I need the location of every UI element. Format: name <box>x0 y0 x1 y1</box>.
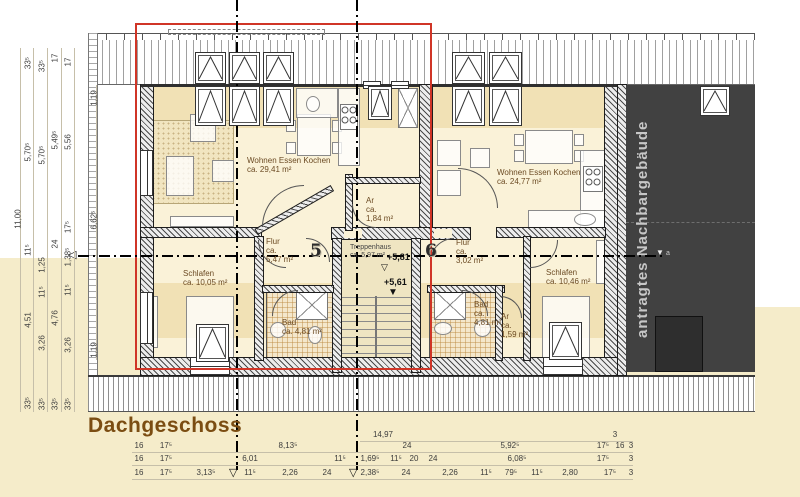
dimension-label: 3,26 <box>38 335 47 351</box>
dimension-label: 17 <box>64 58 73 67</box>
roof-window-icon <box>195 86 226 126</box>
dimension-label: 3 <box>629 468 633 477</box>
section-line-vertical-2 <box>356 0 358 470</box>
dimension-label: 14,97 <box>373 430 393 439</box>
floor-plan-drawing: antragtes Nachbargebäude ◁ ▽ ▽ ▼ a Wohne… <box>0 0 800 497</box>
roof-surface-bottom <box>88 375 755 412</box>
dimension-label: 33⁵ <box>24 397 33 409</box>
dimension-line <box>20 48 21 412</box>
section-arrow-down-2: ▽ <box>349 466 357 479</box>
wall-living-schlafen-right <box>497 228 605 237</box>
dimension-line <box>132 452 633 453</box>
roof-window-icon <box>368 86 392 120</box>
dimension-line <box>47 48 48 412</box>
dimension-label: 1,25 <box>38 257 47 273</box>
dimension-label: 5,49⁵ <box>51 131 60 150</box>
dimension-label: 2,38⁵ <box>361 468 380 477</box>
stove-icon <box>583 166 603 192</box>
dimension-label: 17 <box>51 54 60 63</box>
apartment-number-5: 5 <box>310 241 322 261</box>
level-lower-marker: ▼ <box>388 287 398 298</box>
dimension-label: 16 <box>135 454 144 463</box>
dimension-label: 11⁵ <box>24 244 33 256</box>
dining-chair <box>574 134 584 146</box>
room-label-ar-right: Ar ca. 1,59 m² <box>501 312 528 339</box>
dimension-label: 3,13⁵ <box>197 468 216 477</box>
dimension-label: 3,26 <box>64 337 73 353</box>
dimension-label: 16 <box>135 441 144 450</box>
dimension-label: 33⁵ <box>38 60 47 72</box>
dimension-line <box>33 48 34 412</box>
dimension-label: 17⁵ <box>597 441 609 450</box>
room-label-schlafen-right: Schlafen ca. 10,46 m² <box>546 268 590 286</box>
room-label-bad-right: Bad ca. 4,81 m² <box>474 300 501 327</box>
apartment-number-6: 6 <box>425 241 437 261</box>
dimension-label: 17⁵ <box>64 221 73 233</box>
dimension-label: 24 <box>403 441 412 450</box>
dimension-label: 11⁵ <box>38 286 47 298</box>
room-label-schlafen-left: Schlafen ca. 10,05 m² <box>183 269 227 287</box>
dimension-label: 3 <box>613 430 617 439</box>
roof-window-icon <box>489 86 522 126</box>
room-label-flur-right: Flur ca. 3,02 m² <box>456 238 483 265</box>
dimension-label: 5,56 <box>64 134 73 150</box>
dimension-label: 24 <box>323 468 332 477</box>
dimension-label: 1,69⁵ <box>361 454 380 463</box>
dimension-label: 3 <box>629 454 633 463</box>
dimension-label: 8,13⁵ <box>279 441 298 450</box>
neighbor-label: antragtes Nachbargebäude <box>634 90 658 368</box>
dimension-label: 16 <box>135 468 144 477</box>
dimension-label: 17⁵ <box>160 454 172 463</box>
dimension-label: 17⁵ <box>597 454 609 463</box>
dimension-label: 17⁵ <box>604 468 616 477</box>
kitchen-sink-right <box>574 213 596 226</box>
roof-window-icon <box>700 86 730 116</box>
roof-window-icon <box>263 52 294 84</box>
dimension-label: 17⁵ <box>160 441 172 450</box>
dimension-label: 33⁵ <box>64 398 73 410</box>
dimension-label: 20 <box>410 454 419 463</box>
dimension-label: 5,92⁵ <box>501 441 520 450</box>
room-label-treppenhaus: Treppenhaus ca. 5,97 m² <box>350 244 391 260</box>
dimension-label: 4,51 <box>24 312 33 328</box>
dining-chair <box>514 134 524 146</box>
room-label-bad-left: Bad ca. 4,81 m² <box>282 318 322 336</box>
page-title: Dachgeschoss <box>88 414 242 438</box>
dimension-label: 11⁵ <box>531 468 543 477</box>
roof-window-icon <box>195 52 226 84</box>
dining-chair <box>514 150 524 162</box>
neighbor-level-suffix: a <box>666 250 670 257</box>
level-lower: +5,61 <box>384 277 407 287</box>
dimension-label: 24 <box>402 468 411 477</box>
exterior-wall-right <box>605 85 617 375</box>
party-wall-hatch <box>617 85 626 375</box>
dimension-line <box>360 441 633 442</box>
roof-window-icon <box>549 322 582 360</box>
dining-table-right <box>525 130 573 164</box>
roof-window-icon <box>229 52 260 84</box>
dimension-line <box>74 48 75 412</box>
dimension-label: 33⁵ <box>24 57 33 69</box>
neighbor-chimney <box>655 316 703 372</box>
dimension-label: 4,76 <box>51 310 60 326</box>
dimension-label: 1,38⁵ <box>64 248 73 267</box>
dimension-label: 1,19 <box>90 342 99 358</box>
dimension-label: 1,19 <box>90 90 99 106</box>
roof-window-icon <box>263 86 294 126</box>
level-upper: +5,81 <box>387 252 410 262</box>
neighbor-level-marker: ▼ <box>656 248 664 257</box>
dimension-label: 33⁵ <box>51 398 60 410</box>
dimension-label: 2,26 <box>442 468 458 477</box>
dimension-label: 2,26 <box>282 468 298 477</box>
dimension-label: 17⁵ <box>160 468 172 477</box>
dimension-label: 11⁵ <box>64 284 73 296</box>
dimension-line <box>132 465 633 466</box>
room-label-ar-left: Ar ca. 1,84 m² <box>366 196 393 223</box>
dimension-label: 6,62⁵ <box>90 211 99 230</box>
roof-window-icon <box>229 86 260 126</box>
dimension-label: 3 <box>629 441 633 450</box>
dimension-label: 16 <box>616 441 625 450</box>
dimension-label: 11⁵ <box>244 468 256 477</box>
side-table <box>470 148 490 168</box>
roof-window-icon <box>452 52 485 84</box>
room-label-wohnen-left: Wohnen Essen Kochen ca. 29,41 m² <box>247 156 330 174</box>
toilet-right <box>434 322 452 335</box>
dimension-label: 6,08⁵ <box>508 454 527 463</box>
roof-window-icon <box>452 86 485 126</box>
roof-window-icon <box>196 324 229 362</box>
room-label-flur-left: Flur ca. 5,47 m² <box>266 237 293 264</box>
dimension-label: 79⁵ <box>505 468 517 477</box>
dimension-label: 5,70⁵ <box>38 146 47 165</box>
dimension-label: 11⁵ <box>390 454 402 463</box>
door-gap <box>434 229 452 238</box>
dimension-label: 5,70⁵ <box>24 143 33 162</box>
section-arrow-down-1: ▽ <box>229 466 237 479</box>
dimension-label: 11,00 <box>14 209 23 228</box>
dimension-line <box>61 48 62 412</box>
room-label-wohnen-right: Wohnen Essen Kochen ca. 24,77 m² <box>497 168 580 186</box>
roof-window-icon <box>489 52 522 84</box>
dimension-label: 11⁵ <box>334 454 346 463</box>
dimension-label: 11⁵ <box>480 468 492 477</box>
level-upper-marker: ▽ <box>381 262 388 273</box>
dimension-label: 2,80 <box>562 468 578 477</box>
dimension-label: 33⁵ <box>38 398 47 410</box>
dimension-label: 24 <box>429 454 438 463</box>
dimension-label: 6,01 <box>242 454 258 463</box>
dimension-line <box>132 479 633 480</box>
dimension-label: 24 <box>51 240 60 249</box>
armchair <box>437 140 461 166</box>
